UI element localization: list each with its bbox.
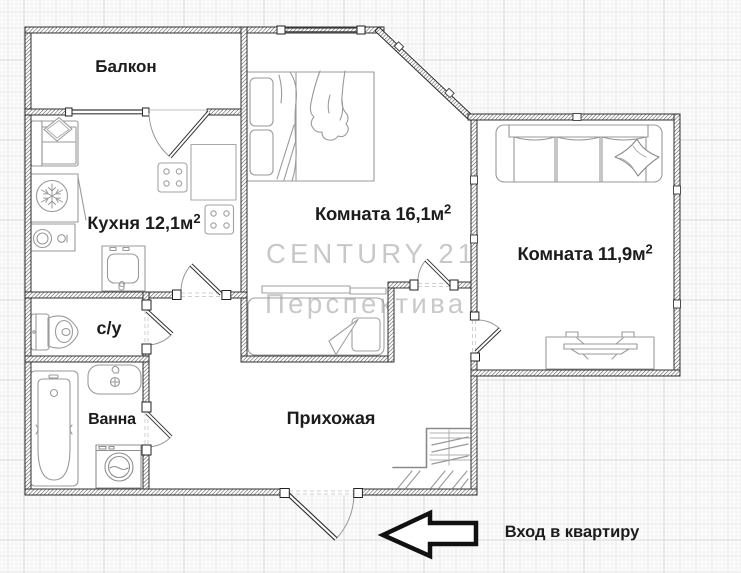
svg-text:Комната 11,9м2: Комната 11,9м2	[517, 242, 652, 265]
svg-text:Кухня 12,1м2: Кухня 12,1м2	[87, 211, 200, 233]
svg-text:Ванна: Ванна	[88, 411, 136, 428]
svg-text:Балкон: Балкон	[95, 57, 156, 76]
svg-text:Вход в квартиру: Вход в квартиру	[505, 523, 640, 541]
svg-text:с/у: с/у	[96, 318, 121, 338]
svg-text:CENTURY 21: CENTURY 21	[266, 238, 477, 269]
svg-text:Прихожая: Прихожая	[287, 408, 376, 428]
svg-text:Комната 16,1м2: Комната 16,1м2	[315, 202, 451, 225]
